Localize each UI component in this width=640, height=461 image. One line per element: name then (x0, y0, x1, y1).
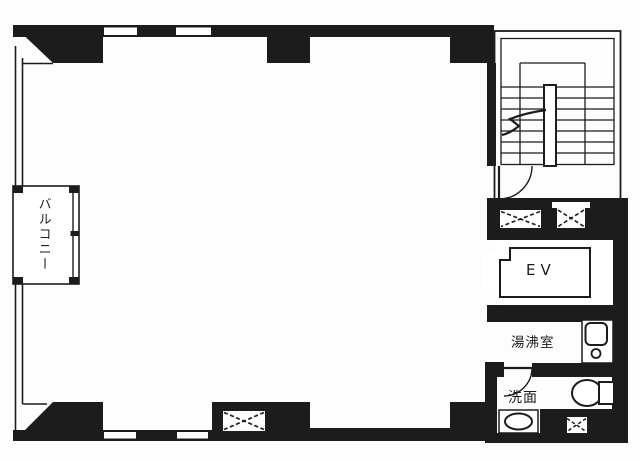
washroom-left-wall (485, 362, 497, 443)
floor-plan-drawing (0, 0, 640, 461)
balcony-post (69, 277, 79, 284)
top-wall-pier (450, 25, 494, 63)
stairwell (495, 31, 621, 205)
balcony-post (69, 186, 79, 193)
top-window (104, 28, 137, 36)
ev-door-opening (486, 253, 497, 288)
washroom-top-wall (532, 363, 613, 377)
stair-hall-door (499, 166, 532, 199)
ev-label: EV (526, 263, 556, 279)
toilet (572, 380, 614, 406)
top-wall (13, 25, 494, 63)
stair-rail (544, 85, 556, 166)
washroom-label: 洗面 (508, 391, 538, 406)
bottom-window (177, 432, 208, 439)
toilet-tank (599, 382, 614, 404)
bottom-wall (13, 402, 497, 441)
floor-plan: バルコニー EV 湯沸室 洗面 (0, 0, 640, 461)
top-wall-pier (267, 25, 310, 63)
ev-shaft (486, 240, 628, 322)
ps-duct-1 (495, 210, 546, 228)
bottom-window (104, 432, 136, 439)
sink-faucet (592, 349, 601, 358)
ps-duct-2 (552, 202, 590, 228)
ps-duct-bottom (218, 411, 270, 431)
ps-duct-3 (563, 417, 591, 433)
balcony-label: バルコニー (36, 197, 50, 279)
sink-basin (586, 323, 608, 345)
bottom-right-wall (485, 433, 628, 443)
bottom-left-chamfer-corner (14, 402, 103, 441)
right-outer-wall (612, 205, 628, 443)
vanity-sink (499, 410, 538, 433)
kitchenette-label: 湯沸室 (511, 336, 555, 350)
balcony-post (13, 277, 23, 284)
kitchenette-sink-unit (582, 320, 613, 363)
balcony-window-tick (71, 231, 80, 236)
stair-treads (501, 87, 614, 153)
top-window (176, 28, 211, 36)
balcony-post (13, 186, 23, 193)
top-left-chamfer-corner (13, 25, 103, 63)
